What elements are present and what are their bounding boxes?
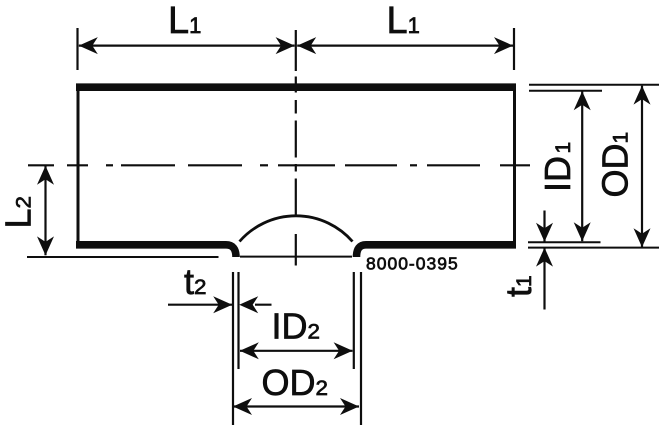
svg-text:8000-0395: 8000-0395 [366, 254, 459, 274]
